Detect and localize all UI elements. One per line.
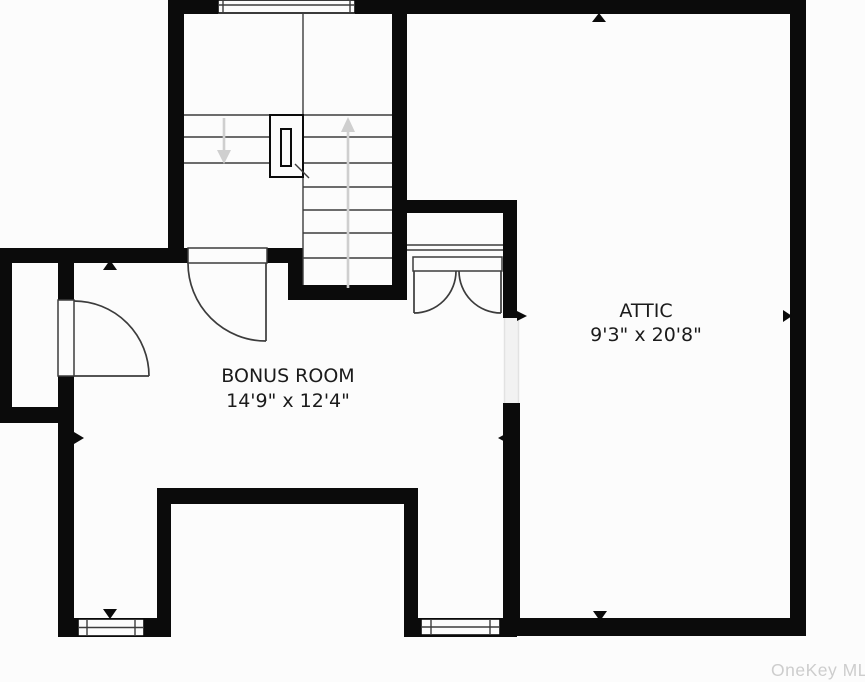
attic-label: ATTIC (619, 300, 672, 322)
wall (58, 376, 74, 637)
stair-down-arrow-icon (217, 118, 231, 164)
floor-plan: BONUS ROOM 14'9" x 12'4" ATTIC 9'3" x 20… (0, 0, 865, 682)
door-left-closet-to-bonus-room (58, 300, 149, 376)
wall (400, 0, 806, 14)
wall (157, 488, 418, 504)
wall (790, 0, 806, 636)
wall (157, 488, 171, 637)
dimension-pointer-icon (103, 609, 117, 619)
dimension-pointer-icon (592, 13, 606, 22)
room-labels: BONUS ROOM 14'9" x 12'4" ATTIC 9'3" x 20… (221, 300, 702, 412)
wall (398, 200, 517, 213)
windows (78, 0, 500, 636)
doors (58, 248, 267, 376)
wall (0, 248, 188, 263)
dimension-pointer-icon (74, 432, 84, 444)
wall (168, 0, 184, 248)
wall (503, 200, 517, 318)
stair-newel-slot (281, 129, 291, 166)
dimension-pointer-icon (517, 311, 527, 321)
floor-plan-page: BONUS ROOM 14'9" x 12'4" ATTIC 9'3" x 20… (0, 0, 865, 682)
door-hall-to-bonus-room (188, 248, 267, 341)
wall (0, 248, 12, 423)
staircase (184, 13, 392, 288)
wall (392, 0, 407, 300)
bonus-room-label: BONUS ROOM (221, 365, 354, 387)
watermark: OneKey MLS (771, 660, 865, 681)
attic-dimension: 9'3" x 20'8" (590, 324, 702, 346)
wall (404, 488, 418, 637)
closet-door-frame (413, 257, 502, 271)
window-bottom-right (421, 619, 500, 635)
wall (58, 248, 74, 300)
opening-floor (504, 318, 519, 403)
window-bottom-left (78, 619, 144, 636)
attic-opening (504, 318, 519, 403)
window-top-stairwell (218, 0, 355, 13)
stair-up-arrow-icon (341, 117, 355, 288)
wall (0, 407, 58, 423)
wall (503, 618, 806, 636)
closet-double-doors (414, 271, 501, 313)
bonus-room-dimension: 14'9" x 12'4" (226, 390, 350, 412)
closet (407, 245, 503, 313)
